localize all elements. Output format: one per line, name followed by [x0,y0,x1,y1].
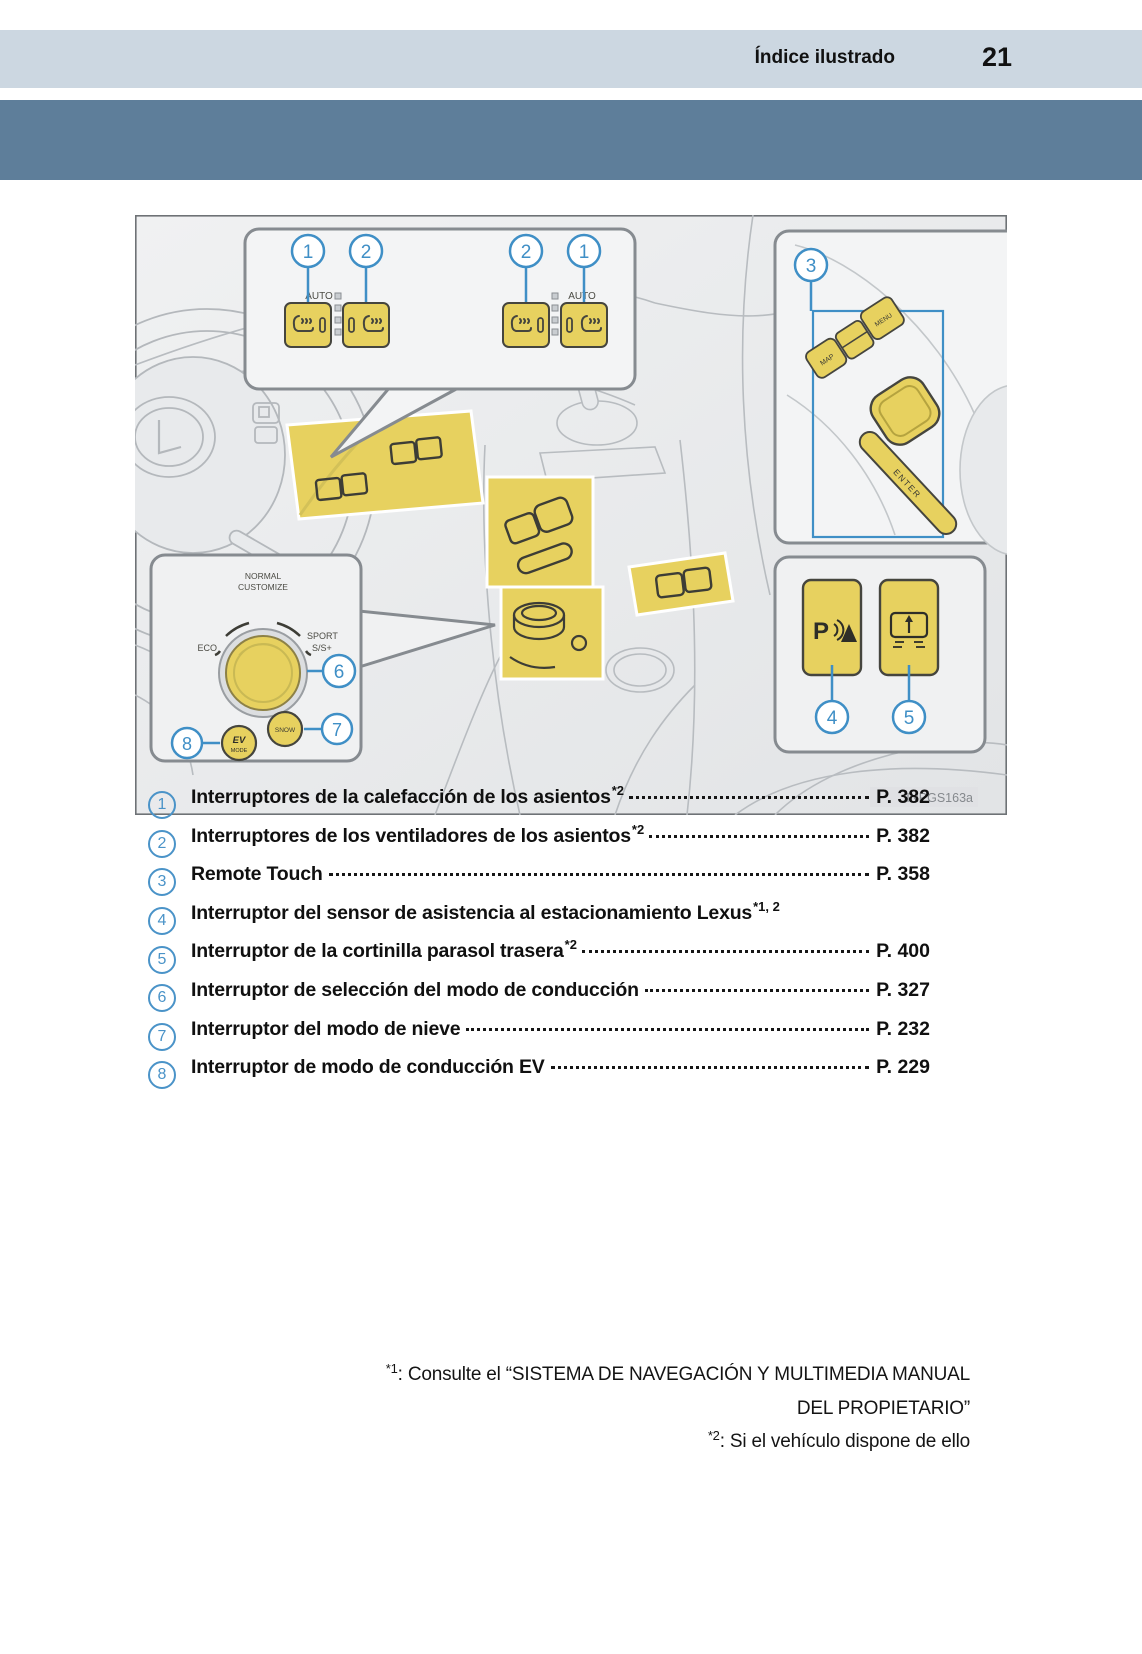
item-page-ref: P. 358 [876,863,930,886]
callout-2b: 2 [521,242,532,263]
index-item: 3 Remote Touch P. 358 [148,863,930,902]
index-item: 1 Interruptores de la calefacción de los… [148,786,930,825]
sport-label: SPORT [307,631,338,641]
dot-leader [645,989,869,992]
remote-touch-callout-panel: 3 MAP MENU ENTER [775,231,1007,555]
item-label: Interruptor de selección del modo de con… [191,979,639,1002]
item-number-badge: 1 [148,791,176,819]
index-item: 7 Interruptor del modo de nieve P. 232 [148,1018,930,1057]
index-item: 4 Interruptor del sensor de asistencia a… [148,902,930,941]
dot-leader [629,796,869,799]
seat-heater-button-left [285,303,331,347]
callout-1b: 1 [579,242,590,263]
item-number-badge: 8 [148,1061,176,1089]
sensor-sunshade-callout-panel: P 4 5 [775,557,985,752]
normal-label: NORMAL [245,571,282,581]
item-label: Interruptor de modo de conducción EV [191,1056,545,1079]
parking-sensor-button: P [803,580,861,675]
callout-8: 8 [182,734,192,754]
item-page-ref: P. 382 [876,786,930,809]
item-label: Remote Touch [191,863,323,886]
item-number-badge: 7 [148,1023,176,1051]
illustration-svg: AUTO AUTO [135,215,1007,815]
item-page-ref: P. 232 [876,1018,930,1041]
item-footnote-ref: *2 [632,822,644,837]
item-page-ref: P. 382 [876,825,930,848]
index-item: 8 Interruptor de modo de conducción EV P… [148,1056,930,1095]
callout-6: 6 [334,662,345,683]
callout-1: 1 [303,242,314,263]
index-item: 2 Interruptores de los ventiladores de l… [148,825,930,864]
item-number-badge: 5 [148,946,176,974]
footnote-1-line-1: *1: Consulte el “SISTEMA DE NAVEGACIÓN Y… [386,1358,970,1392]
dot-leader [329,873,870,876]
p-sensor-glyph: P [813,618,829,645]
auto-label-right: AUTO [568,291,596,302]
footnote-1-line-2: DEL PROPIETARIO” [386,1392,970,1425]
callout-2: 2 [361,242,372,263]
item-page-ref: P. 400 [876,940,930,963]
snow-mode-button: SNOW [268,712,302,746]
snow-label: SNOW [275,727,296,734]
item-label: Interruptor del sensor de asistencia al … [191,902,752,925]
eco-label: ECO [197,643,217,653]
item-label: Interruptores de la calefacción de los a… [191,786,611,809]
dot-leader [466,1028,869,1031]
ev-mode-label: MODE [231,748,248,754]
callout-3: 3 [806,256,817,277]
callout-7: 7 [332,720,342,740]
header-band: Índice ilustrado 21 [0,30,1142,88]
seat-fan-button-right [503,303,549,347]
index-item: 6 Interruptor de selección del modo de c… [148,979,930,1018]
auto-label-left: AUTO [305,291,333,302]
highlight-mode-knob-location [501,587,603,679]
drive-mode-knob [219,629,307,717]
item-label: Interruptor del modo de nieve [191,1018,460,1041]
footnote-marker: *1 [386,1361,398,1376]
index-item: 5 Interruptor de la cortinilla parasol t… [148,940,930,979]
drive-mode-callout-panel: NORMAL CUSTOMIZE ECO SPORT S/S+ 6 SNOW [151,555,361,761]
ev-label: EV [233,735,246,746]
page-header-title: Índice ilustrado [755,47,895,69]
dot-leader [551,1066,870,1069]
footnote-marker: *2 [708,1428,720,1443]
footnotes: *1: Consulte el “SISTEMA DE NAVEGACIÓN Y… [386,1358,970,1459]
page-number: 21 [982,42,1012,73]
footnote-2: *2: Si el vehículo dispone de ello [386,1425,970,1459]
highlight-console-switches [487,477,593,587]
item-label: Interruptor de la cortinilla parasol tra… [191,940,564,963]
section-color-band [0,100,1142,180]
item-number-badge: 6 [148,984,176,1012]
interior-illustration: AUTO AUTO [135,215,1007,815]
dot-leader [649,835,869,838]
item-page-ref: P. 229 [876,1056,930,1079]
item-number-badge: 2 [148,830,176,858]
item-footnote-ref: *2 [612,783,624,798]
item-label: Interruptores de los ventiladores de los… [191,825,631,848]
seat-heater-button-right [561,303,607,347]
dot-leader [582,950,869,953]
customize-label: CUSTOMIZE [238,582,288,592]
seat-fan-button-left [343,303,389,347]
item-footnote-ref: *2 [565,937,577,952]
sunshade-button [880,580,938,675]
callout-5: 5 [904,708,915,729]
item-footnote-ref: *1, 2 [753,899,780,914]
callout-4: 4 [827,708,838,729]
ev-mode-button: EV MODE [222,726,256,760]
item-page-ref: P. 327 [876,979,930,1002]
ssplus-label: S/S+ [312,643,332,653]
item-number-badge: 3 [148,868,176,896]
item-number-badge: 4 [148,907,176,935]
manual-page: Índice ilustrado 21 [0,0,1142,1654]
illustrated-index-list: 1 Interruptores de la calefacción de los… [148,786,930,1095]
